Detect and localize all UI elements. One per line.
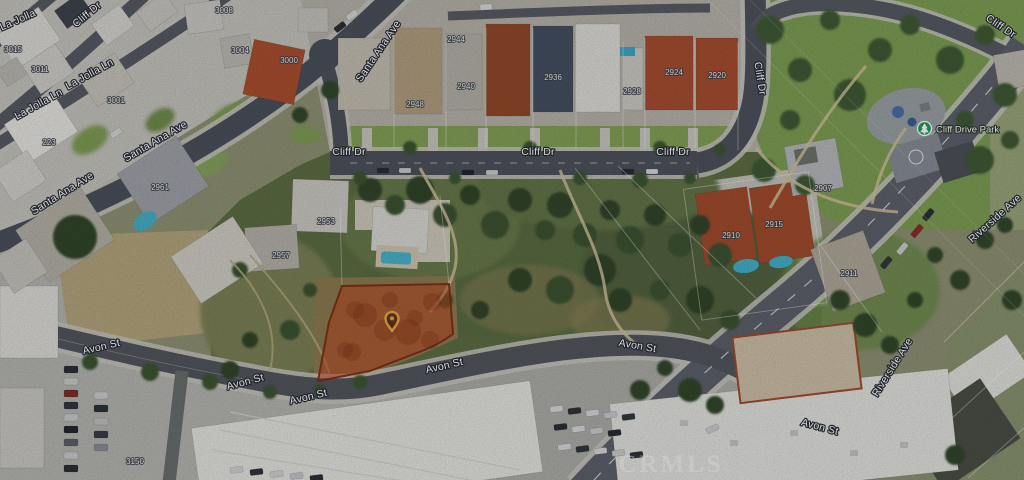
photo-grain-overlay bbox=[0, 0, 1024, 480]
listing-map-screenshot: La Jolla Cliff Dr La Jolla Ln La Jolla L… bbox=[0, 0, 1024, 480]
satellite-map-canvas[interactable]: La Jolla Cliff Dr La Jolla Ln La Jolla L… bbox=[0, 0, 1024, 480]
